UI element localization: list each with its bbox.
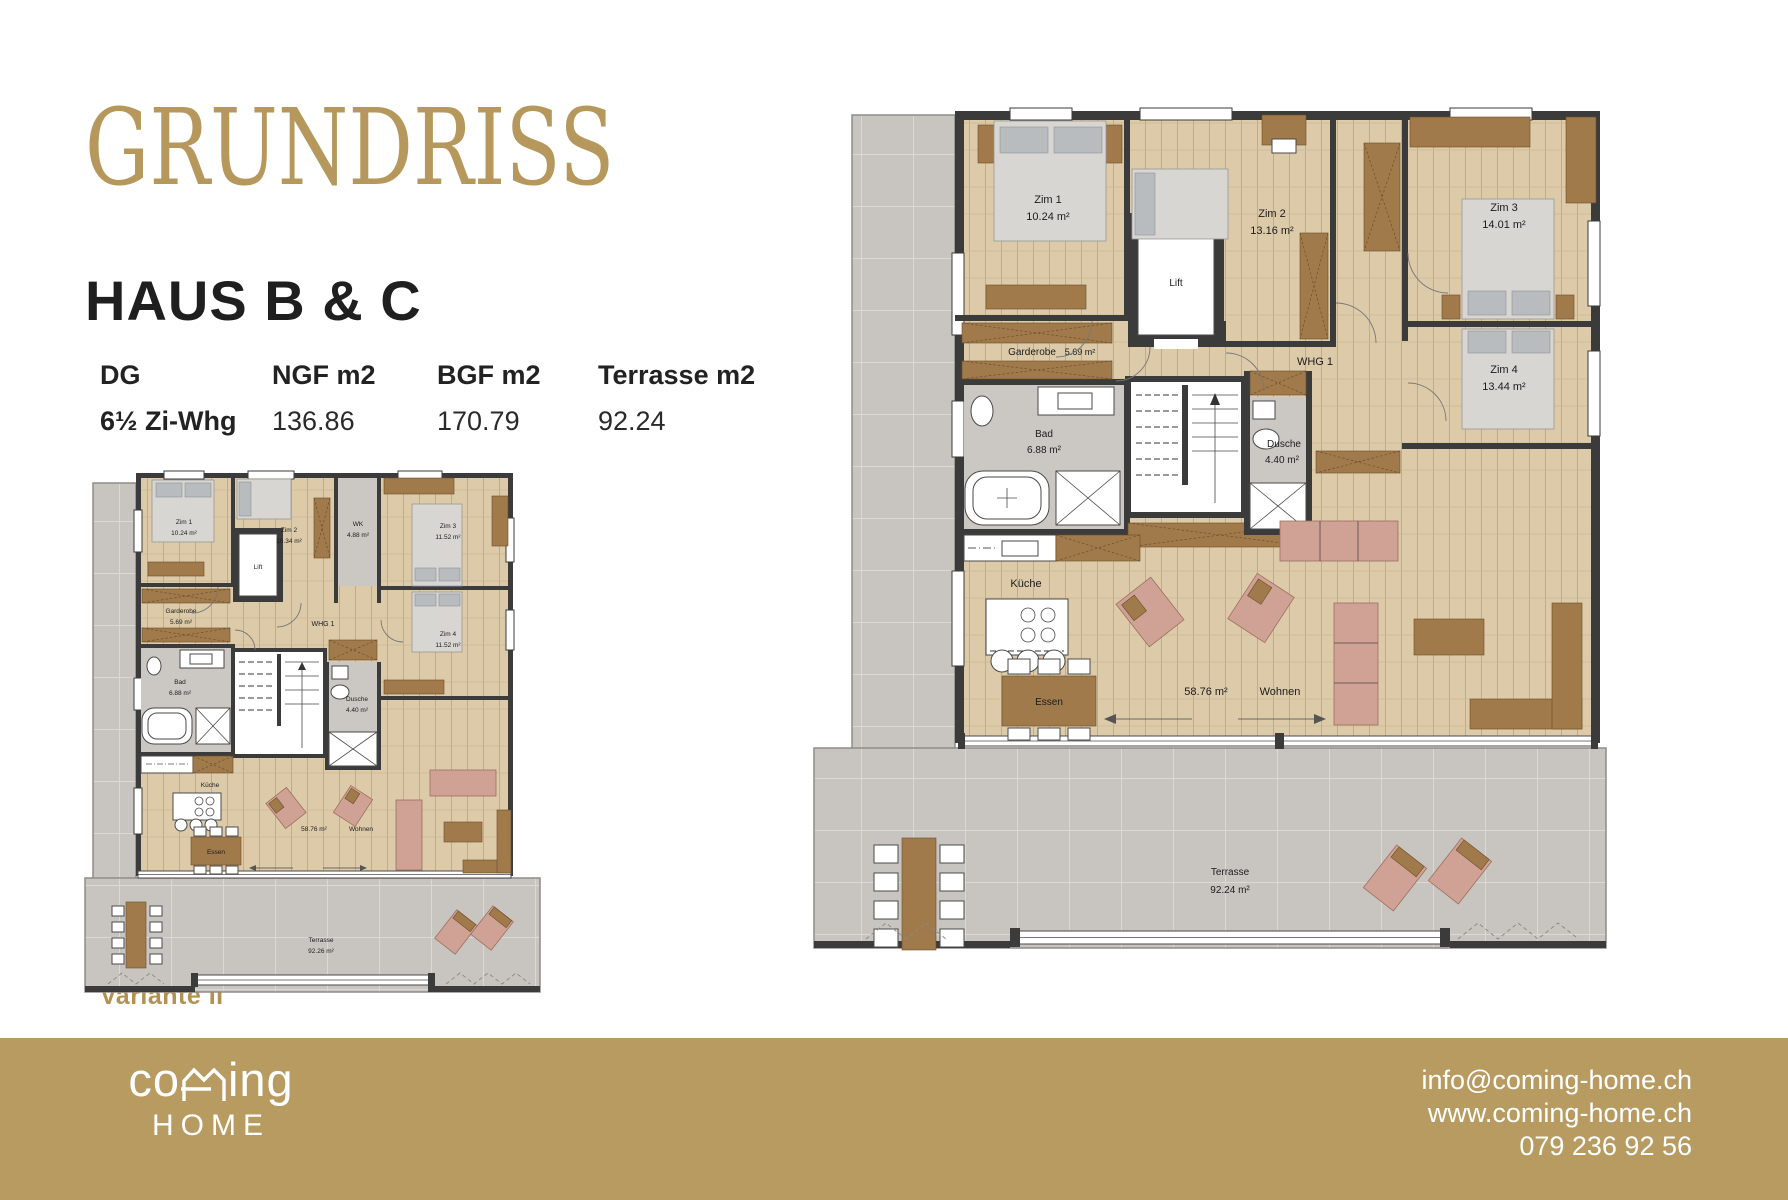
svg-text:Wohnen: Wohnen bbox=[349, 826, 373, 833]
large-floor-plan: Terrasse 92.24 m² bbox=[810, 103, 1610, 961]
svg-text:WK: WK bbox=[353, 521, 364, 528]
logo-co: co bbox=[128, 1052, 180, 1107]
svg-text:Küche: Küche bbox=[1010, 578, 1041, 590]
contact-block: info@coming-home.ch www.coming-home.ch 0… bbox=[1421, 1064, 1692, 1163]
svg-text:Bad: Bad bbox=[174, 679, 186, 686]
apartment-type: 6½ Zi-Whg bbox=[100, 406, 237, 437]
col-terrasse: Terrasse m2 bbox=[598, 360, 755, 391]
page-title: GRUNDRISS bbox=[85, 92, 614, 203]
logo-ing: ing bbox=[228, 1052, 294, 1107]
svg-text:Zim 2: Zim 2 bbox=[281, 527, 298, 534]
svg-text:Zim 1: Zim 1 bbox=[176, 519, 193, 526]
footer: coing HOME info@coming-home.ch www.comin… bbox=[0, 1038, 1788, 1200]
whg-label: WHG 1 bbox=[1297, 356, 1333, 368]
terrasse-area: 92.24 m² bbox=[1210, 885, 1250, 896]
terrasse-label: Terrasse bbox=[1211, 867, 1250, 878]
svg-text:4.40 m²: 4.40 m² bbox=[1265, 455, 1300, 466]
svg-text:Dusche: Dusche bbox=[346, 696, 368, 703]
small-stairs bbox=[233, 650, 325, 756]
spec-data-row: 6½ Zi-Whg 136.86 170.79 92.24 bbox=[100, 406, 800, 452]
small-bad: Bad 6.88 m² bbox=[141, 648, 231, 752]
svg-text:11.52 m²: 11.52 m² bbox=[435, 642, 461, 649]
svg-text:4.40 m²: 4.40 m² bbox=[346, 707, 369, 714]
contact-phone[interactable]: 079 236 92 56 bbox=[1421, 1130, 1692, 1163]
svg-text:58.76 m²: 58.76 m² bbox=[301, 826, 327, 833]
coming-home-logo: coing HOME bbox=[96, 1052, 326, 1143]
col-ngf: NGF m2 bbox=[272, 360, 376, 391]
svg-text:Zim 3: Zim 3 bbox=[1490, 202, 1518, 214]
logo-word-coming: coing bbox=[96, 1052, 326, 1107]
svg-text:Zim 1: Zim 1 bbox=[1034, 194, 1062, 206]
svg-text:11.52 m²: 11.52 m² bbox=[435, 534, 461, 541]
small-essen: Essen bbox=[191, 827, 241, 874]
svg-text:Dusche: Dusche bbox=[1267, 439, 1301, 450]
house-roof-m-icon bbox=[181, 1063, 227, 1103]
svg-text:Wohnen: Wohnen bbox=[1260, 686, 1301, 698]
small-terrasse-area: 92.26 m² bbox=[308, 948, 334, 955]
svg-text:14.01 m²: 14.01 m² bbox=[1482, 219, 1526, 231]
svg-text:Bad: Bad bbox=[1035, 429, 1053, 440]
bgf-value: 170.79 bbox=[437, 406, 520, 437]
logo-word-home: HOME bbox=[96, 1109, 326, 1143]
svg-text:10.24 m²: 10.24 m² bbox=[1026, 211, 1070, 223]
svg-text:Essen: Essen bbox=[207, 849, 225, 856]
svg-text:Lift: Lift bbox=[254, 564, 263, 571]
svg-text:58.76 m²: 58.76 m² bbox=[1184, 686, 1228, 698]
small-terrasse-label: Terrasse bbox=[309, 937, 334, 944]
large-apartment: Lift Dusche bbox=[952, 108, 1600, 749]
spec-table: DG NGF m2 BGF m2 Terrasse m2 6½ Zi-Whg 1… bbox=[100, 360, 800, 452]
small-dusche: Dusche 4.40 m² bbox=[325, 640, 381, 770]
svg-text:5.69 m²: 5.69 m² bbox=[170, 619, 193, 626]
contact-website[interactable]: www.coming-home.ch bbox=[1421, 1097, 1692, 1130]
bad: Bad 6.88 m² bbox=[964, 385, 1124, 529]
svg-text:Zim 2: Zim 2 bbox=[1258, 208, 1286, 220]
svg-text:Zim 4: Zim 4 bbox=[440, 631, 457, 638]
svg-text:Essen: Essen bbox=[1035, 697, 1063, 708]
ngf-value: 136.86 bbox=[272, 406, 355, 437]
zim4: Zim 4 13.44 m² bbox=[1462, 329, 1554, 429]
svg-text:13.16 m²: 13.16 m² bbox=[1250, 225, 1294, 237]
col-bgf: BGF m2 bbox=[437, 360, 541, 391]
small-floor-plan: Terrasse 92.26 m² bbox=[68, 470, 553, 998]
svg-text:5.69 m²: 5.69 m² bbox=[1065, 347, 1096, 357]
terrasse-value: 92.24 bbox=[598, 406, 666, 437]
svg-text:Zim 4: Zim 4 bbox=[1490, 364, 1518, 376]
svg-text:10.34 m²: 10.34 m² bbox=[276, 538, 302, 545]
essen: Essen bbox=[1002, 659, 1096, 740]
col-floor: DG bbox=[100, 360, 141, 391]
small-building: Lift Dusche 4.40 m² bbox=[134, 471, 514, 878]
svg-text:Zim 3: Zim 3 bbox=[440, 523, 457, 530]
contact-email[interactable]: info@coming-home.ch bbox=[1421, 1064, 1692, 1097]
spec-header-row: DG NGF m2 BGF m2 Terrasse m2 bbox=[100, 360, 800, 406]
page-subtitle: HAUS B & C bbox=[85, 268, 422, 333]
svg-text:10.24 m²: 10.24 m² bbox=[171, 530, 197, 537]
svg-text:6.88 m²: 6.88 m² bbox=[169, 690, 192, 697]
svg-text:13.44 m²: 13.44 m² bbox=[1482, 381, 1526, 393]
small-whg-label: WHG 1 bbox=[312, 621, 335, 628]
svg-text:4.88 m²: 4.88 m² bbox=[347, 532, 370, 539]
svg-text:Garderobe: Garderobe bbox=[165, 608, 196, 615]
svg-text:Lift: Lift bbox=[1169, 278, 1183, 289]
svg-text:Garderobe: Garderobe bbox=[1008, 347, 1056, 358]
svg-text:6.88 m²: 6.88 m² bbox=[1027, 445, 1062, 456]
svg-text:Küche: Küche bbox=[201, 782, 220, 789]
